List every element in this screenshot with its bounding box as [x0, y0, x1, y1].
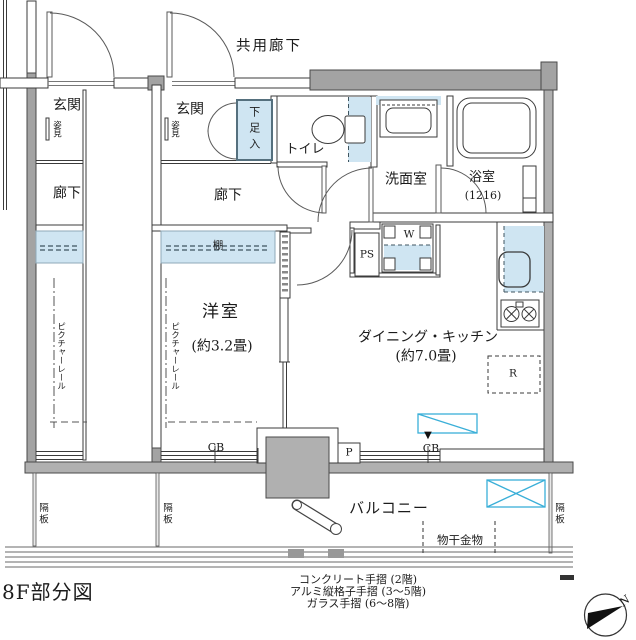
- label-cb-right: CB: [423, 443, 440, 455]
- label-partition-left: 隔板: [37, 503, 47, 526]
- window-adjacent: [36, 452, 83, 460]
- stove: [501, 300, 539, 327]
- label-entrance: 玄関: [176, 103, 204, 118]
- balcony-railing: [5, 547, 574, 580]
- label-balcony: バルコニー: [349, 501, 429, 517]
- label-adjacent-mirror: 姿見: [52, 121, 61, 138]
- entrance-door: [167, 12, 234, 77]
- label-adjacent-entrance: 玄関: [53, 99, 81, 114]
- label-window-marker: ▼: [424, 431, 432, 442]
- label-pipe-space: PS: [360, 249, 374, 260]
- compass-needle: [587, 606, 623, 629]
- label-refrigerator: R: [509, 368, 517, 379]
- label-adjacent-hallway: 廊下: [53, 187, 81, 202]
- balcony-partition-center-line: [156, 473, 159, 546]
- label-hallway: 廊下: [214, 189, 242, 204]
- kitchen-counter: [499, 226, 544, 292]
- label-shoe-cabinet: 下足入: [248, 106, 260, 154]
- drain-pipe: [293, 501, 342, 535]
- label-washroom: 洗面室: [385, 173, 427, 188]
- label-western-room: 洋室: [202, 304, 240, 322]
- floor-plan-drawing: [0, 0, 636, 640]
- toilet-door: [278, 166, 326, 213]
- entrance-door-adjacent: [47, 12, 114, 77]
- windows: [36, 422, 440, 463]
- ac-unit-box: [487, 480, 545, 507]
- shelf-adjacent: [36, 231, 83, 263]
- label-bathroom-size: (1216): [465, 190, 502, 202]
- label-dining-kitchen: ダイニング・キッチン: [358, 331, 498, 346]
- label-common-corridor: 共用廊下: [236, 39, 302, 54]
- page-title: 8F部分図: [2, 582, 94, 603]
- floor-plan: 共用廊下 玄関 姿見 廊下 ピクチャーレール 玄関 姿見 下足入 トイレ 洗面室…: [0, 0, 636, 640]
- label-mirror: 姿見: [170, 121, 179, 138]
- vanity-sink: [376, 96, 441, 137]
- label-cb-left: CB: [208, 442, 225, 454]
- sliding-door-west-room: [280, 232, 290, 298]
- label-western-room-size: (約3.2畳): [191, 340, 252, 355]
- mirror-mark: [165, 118, 168, 140]
- dk-door: [297, 230, 352, 285]
- label-toilet: トイレ: [285, 143, 324, 157]
- label-laundry-hardware: 物干金物: [437, 534, 483, 546]
- label-picture-rail: ピクチャーレール: [170, 322, 179, 390]
- legend-glass-rail: ガラス手摺 (6〜8階): [307, 595, 410, 611]
- label-dining-kitchen-size: (約7.0畳): [395, 350, 456, 365]
- label-partition-center: 隔板: [161, 503, 171, 526]
- label-shelf: 棚: [213, 240, 224, 251]
- label-partition-right: 隔板: [553, 503, 563, 526]
- shoe-cabinet-doors: [208, 103, 237, 159]
- label-washer: W: [404, 229, 415, 240]
- label-bathroom: 浴室: [469, 171, 495, 185]
- balcony-partition-left-line: [33, 473, 36, 546]
- balcony-partition-right-line: [549, 473, 552, 553]
- label-pillar: P: [345, 447, 352, 458]
- label-adjacent-picture-rail: ピクチャーレール: [56, 322, 65, 390]
- mirror-mark-adjacent: [46, 118, 49, 140]
